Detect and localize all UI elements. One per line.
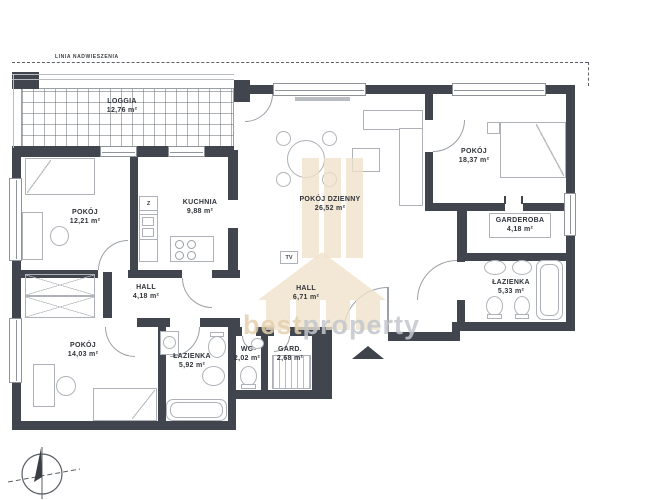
room-label-loggia: LOGGIA 12,76 m² bbox=[87, 97, 157, 116]
room-area: 2,02 m² bbox=[227, 354, 267, 363]
chair bbox=[276, 131, 291, 146]
bathtub-inner bbox=[170, 402, 223, 418]
room-name: WC bbox=[227, 345, 267, 354]
room-name: HALL bbox=[111, 283, 181, 292]
toilet bbox=[240, 366, 257, 386]
wall-segment bbox=[128, 270, 140, 278]
room-name: POKÓJ bbox=[48, 341, 118, 350]
wall-segment bbox=[425, 93, 433, 120]
chair bbox=[276, 172, 291, 187]
room-area: 4,18 m² bbox=[485, 225, 555, 234]
room-area: 2,68 m² bbox=[265, 354, 315, 363]
room-area: 5,33 m² bbox=[476, 287, 546, 296]
chair bbox=[322, 131, 337, 146]
wall-segment bbox=[566, 94, 575, 193]
room-name: POKÓJ DZIENNY bbox=[280, 195, 380, 204]
window bbox=[100, 146, 137, 157]
wall-segment bbox=[457, 300, 465, 322]
room-name: ŁAZIENKA bbox=[476, 278, 546, 287]
compass-icon bbox=[6, 444, 86, 500]
washing-machine-door bbox=[163, 336, 176, 349]
window bbox=[9, 318, 22, 383]
window bbox=[9, 178, 22, 261]
window bbox=[273, 83, 366, 96]
room-area: 6,71 m² bbox=[271, 293, 341, 302]
wall-segment bbox=[433, 203, 505, 211]
desk bbox=[22, 212, 43, 260]
toilet-tank bbox=[210, 332, 224, 337]
entrance-marker bbox=[352, 346, 384, 359]
balcony-door-arc bbox=[245, 94, 273, 122]
window-sill bbox=[295, 97, 350, 101]
wall-segment bbox=[566, 236, 575, 331]
room-label-lazienka-1: ŁAZIENKA 5,33 m² bbox=[476, 278, 546, 297]
fridge: Z bbox=[139, 196, 158, 211]
wall-segment bbox=[236, 390, 312, 399]
loggia-rail-line bbox=[12, 79, 234, 80]
room-area: 12,21 m² bbox=[50, 217, 120, 226]
wall-segment bbox=[232, 327, 242, 336]
door-arc bbox=[417, 260, 457, 300]
desk bbox=[33, 364, 55, 407]
wall-segment bbox=[457, 211, 467, 253]
sofa bbox=[399, 128, 423, 206]
room-name: LOGGIA bbox=[87, 97, 157, 106]
room-area: 9,88 m² bbox=[165, 207, 235, 216]
wall-segment bbox=[12, 157, 21, 178]
room-label-pokoj-1: POKÓJ 12,21 m² bbox=[50, 208, 120, 227]
room-name: ŁAZIENKA bbox=[157, 352, 227, 361]
door-arc bbox=[98, 240, 128, 270]
kitchen-sink-bowl bbox=[142, 217, 154, 226]
door-arc bbox=[182, 278, 212, 308]
wall-segment bbox=[228, 327, 236, 421]
sink bbox=[484, 260, 506, 275]
window bbox=[564, 193, 576, 236]
floor-plan: LINIA NADWIESZENIA bbox=[0, 0, 663, 500]
room-name: POKÓJ bbox=[50, 208, 120, 217]
wall-segment bbox=[457, 322, 575, 331]
loggia-rail-line bbox=[12, 74, 234, 75]
room-label-pokoj-dzienny: POKÓJ DZIENNY 26,52 m² bbox=[280, 195, 380, 214]
room-area: 14,03 m² bbox=[48, 350, 118, 359]
wardrobe bbox=[25, 296, 95, 318]
wall-segment bbox=[12, 421, 236, 430]
room-label-hall-2: HALL 6,71 m² bbox=[271, 284, 341, 303]
bed-pillow bbox=[132, 390, 155, 419]
room-area: 26,52 m² bbox=[280, 204, 380, 213]
kitchen-sink-bowl bbox=[142, 228, 154, 237]
overhang-label: LINIA NADWIESZENIA bbox=[55, 54, 119, 60]
sofa bbox=[363, 110, 423, 130]
room-area: 12,76 m² bbox=[87, 106, 157, 115]
bed-pillow bbox=[27, 160, 51, 193]
loggia-rail-line bbox=[13, 74, 14, 148]
stove-burner bbox=[175, 240, 184, 249]
chair bbox=[56, 376, 76, 396]
room-label-pokoj-2: POKÓJ 18,37 m² bbox=[439, 147, 509, 166]
room-name: POKÓJ bbox=[439, 147, 509, 156]
wall-segment bbox=[130, 157, 138, 270]
room-name: GARDEROBA bbox=[485, 216, 555, 225]
wall-segment bbox=[228, 150, 238, 200]
room-label-garderoba: GARDEROBA 4,18 m² bbox=[485, 216, 555, 235]
room-label-lazienka-2: ŁAZIENKA 5,92 m² bbox=[157, 352, 227, 371]
toilet-tank bbox=[241, 384, 256, 389]
bed-pillow bbox=[536, 124, 564, 176]
window bbox=[168, 146, 205, 157]
room-area: 18,37 m² bbox=[439, 156, 509, 165]
room-area: 5,92 m² bbox=[157, 361, 227, 370]
door-jamb-tick bbox=[521, 196, 523, 204]
wall-segment bbox=[137, 146, 168, 157]
room-label-pokoj-3: POKÓJ 14,03 m² bbox=[48, 341, 118, 360]
wall-segment bbox=[228, 228, 238, 278]
room-label-wc: WC 2,02 m² bbox=[227, 345, 267, 364]
room-label-kuchnia: KUCHNIA 9,88 m² bbox=[165, 198, 235, 217]
wall-segment bbox=[140, 270, 182, 278]
fridge-label: Z bbox=[147, 201, 150, 207]
watermark-part1: best bbox=[243, 310, 303, 340]
overhang-dashed-line-end bbox=[588, 62, 589, 86]
nightstand bbox=[487, 122, 500, 134]
window bbox=[452, 83, 546, 96]
stove-burner bbox=[187, 251, 196, 260]
sink bbox=[512, 260, 532, 275]
wardrobe bbox=[25, 274, 95, 296]
room-name: GARD. bbox=[265, 345, 315, 354]
room-name: KUCHNIA bbox=[165, 198, 235, 207]
stove-burner bbox=[175, 251, 184, 260]
watermark-part2: property bbox=[303, 310, 421, 340]
watermark-text: bestproperty bbox=[243, 310, 420, 341]
bidet-base bbox=[515, 314, 529, 319]
bidet bbox=[514, 296, 530, 316]
room-area: 4,18 m² bbox=[111, 292, 181, 301]
toilet bbox=[486, 296, 503, 316]
room-label-hall-1: HALL 4,18 m² bbox=[111, 283, 181, 302]
room-label-gard: GARD. 2,68 m² bbox=[265, 345, 315, 364]
wall-segment bbox=[12, 146, 100, 157]
wall-segment bbox=[137, 318, 170, 327]
overhang-dashed-line bbox=[12, 62, 588, 63]
room-name: HALL bbox=[271, 284, 341, 293]
toilet-tank bbox=[487, 314, 502, 319]
wall-segment bbox=[425, 152, 433, 211]
stove-burner bbox=[187, 240, 196, 249]
wall-segment bbox=[523, 203, 567, 211]
chair bbox=[50, 226, 69, 246]
door-jamb-tick bbox=[504, 196, 506, 204]
